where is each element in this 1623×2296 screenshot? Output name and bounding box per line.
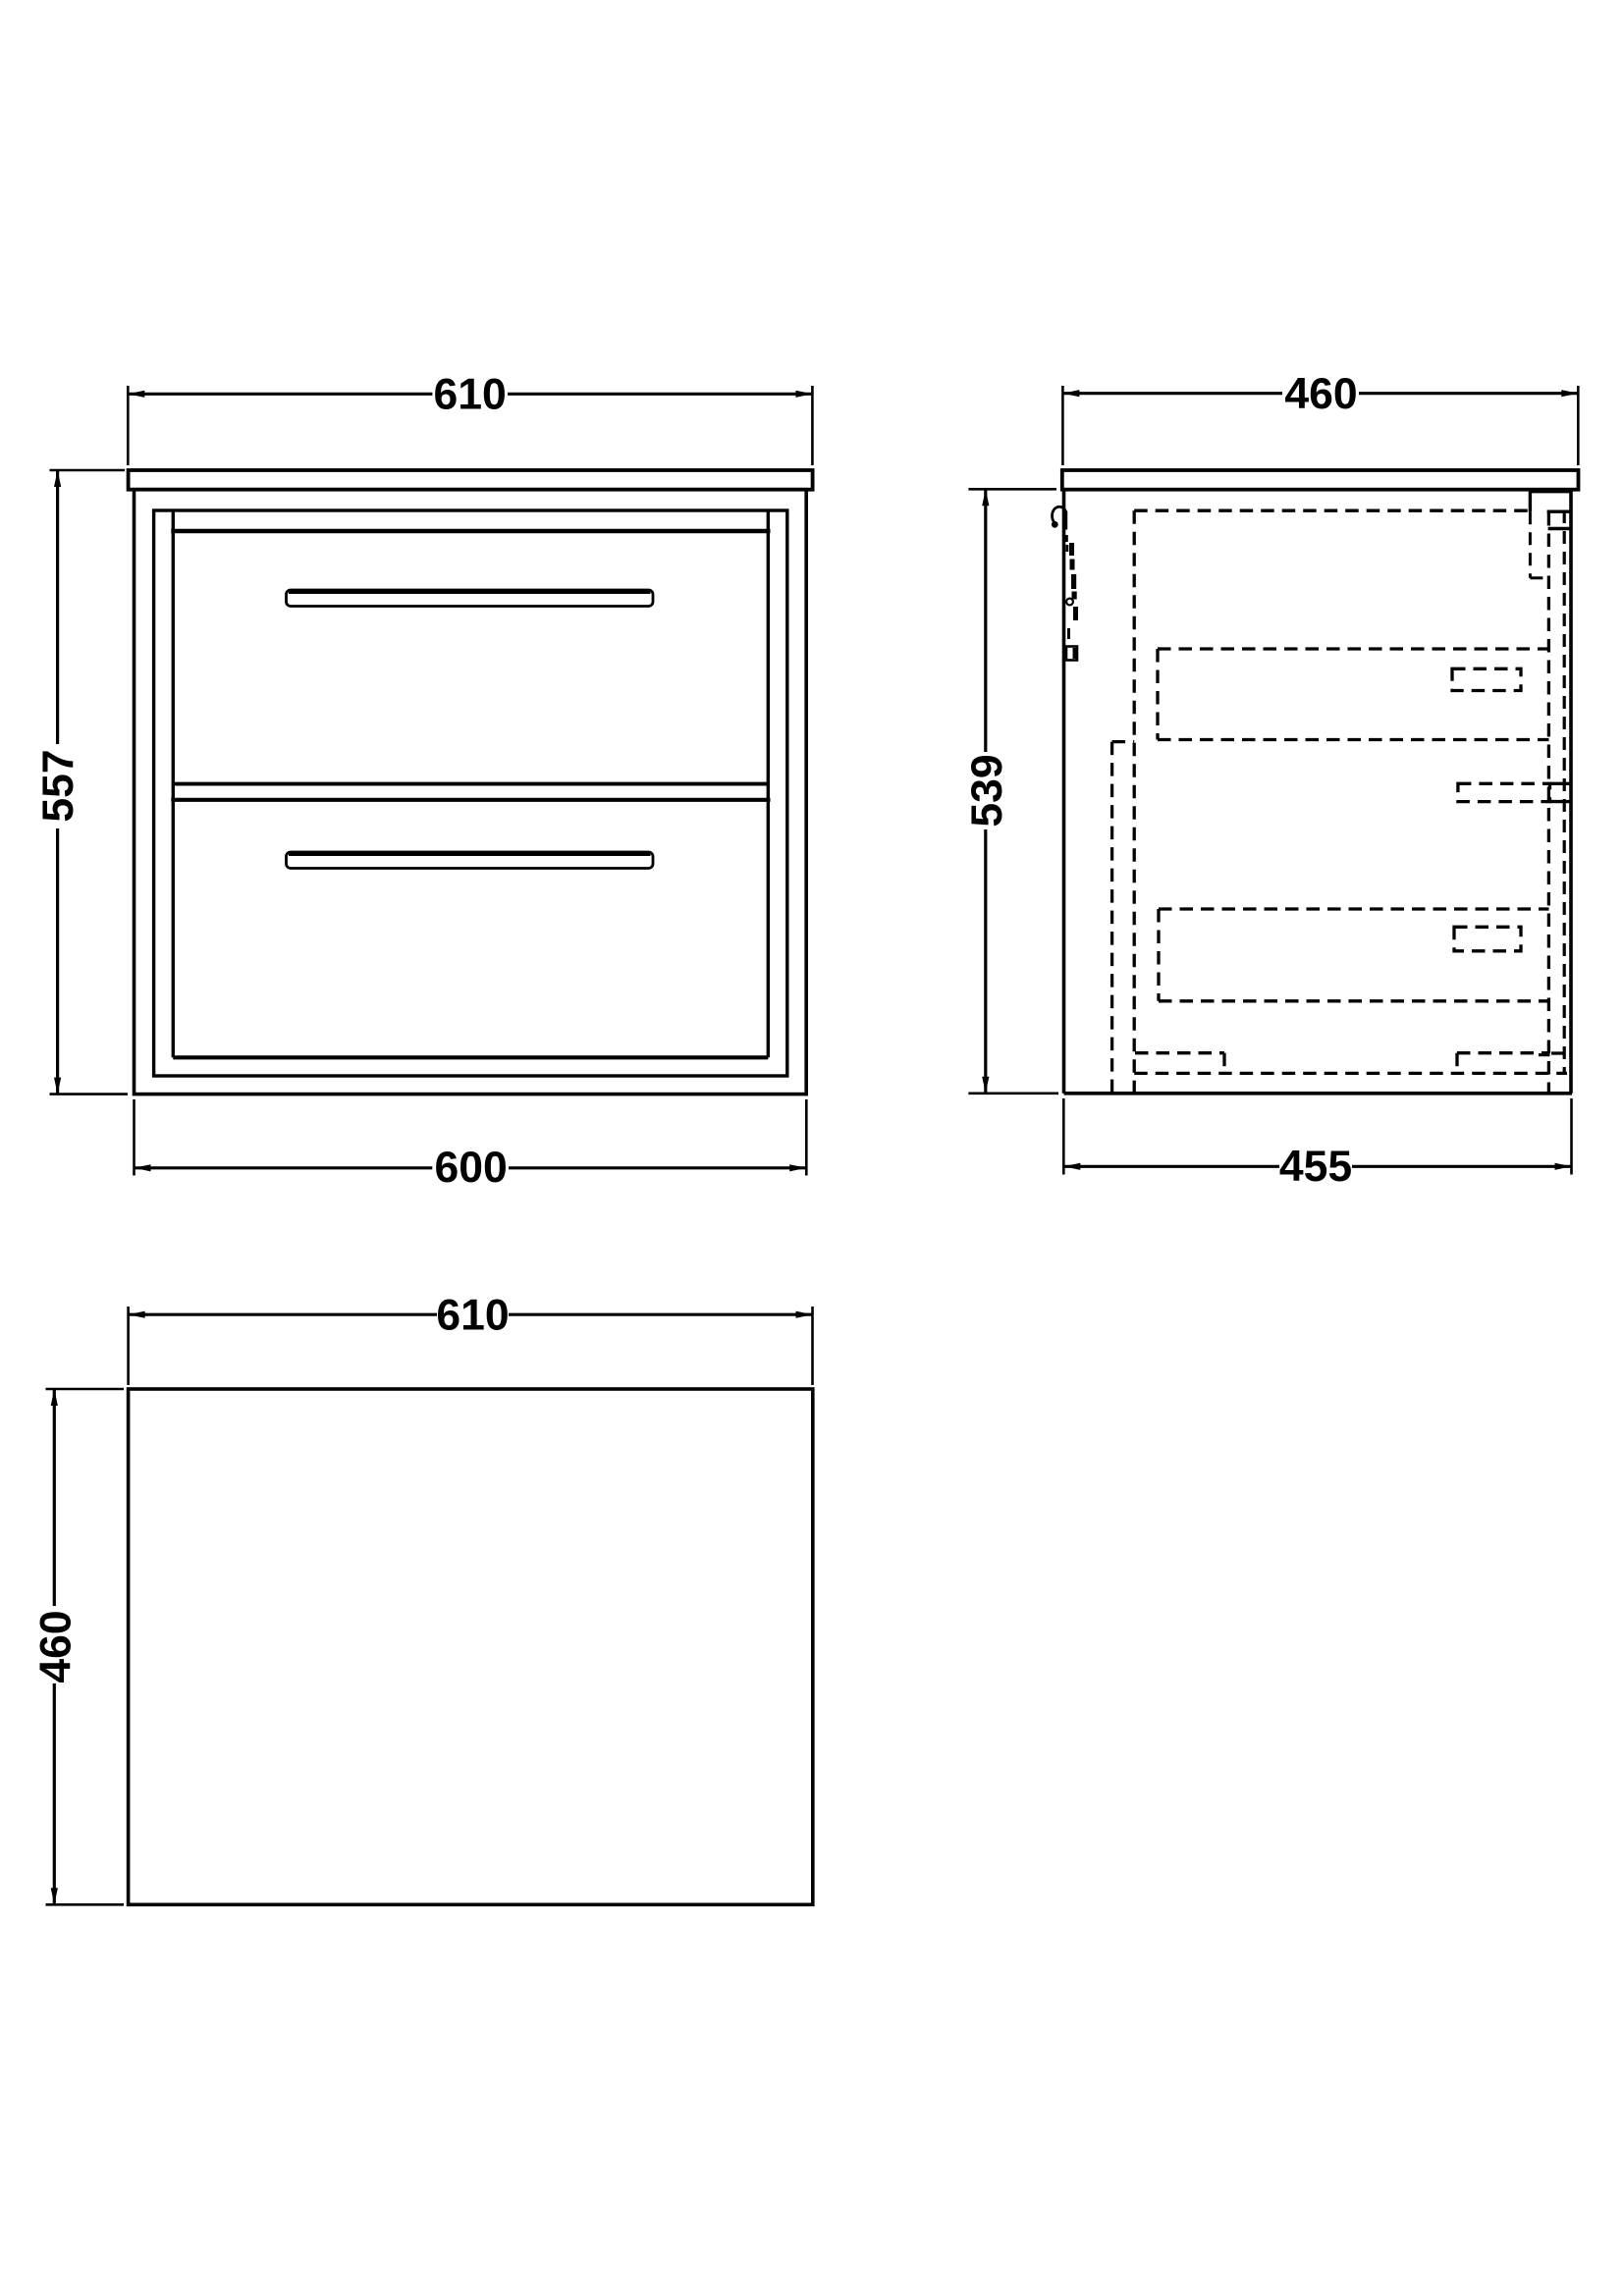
svg-text:600: 600 [434,1144,507,1192]
svg-text:455: 455 [1279,1143,1352,1191]
svg-text:460: 460 [31,1610,80,1682]
svg-text:460: 460 [1284,370,1357,418]
svg-text:610: 610 [433,371,506,419]
svg-text:557: 557 [34,749,82,822]
svg-text:610: 610 [436,1292,509,1340]
svg-text:539: 539 [963,754,1011,827]
